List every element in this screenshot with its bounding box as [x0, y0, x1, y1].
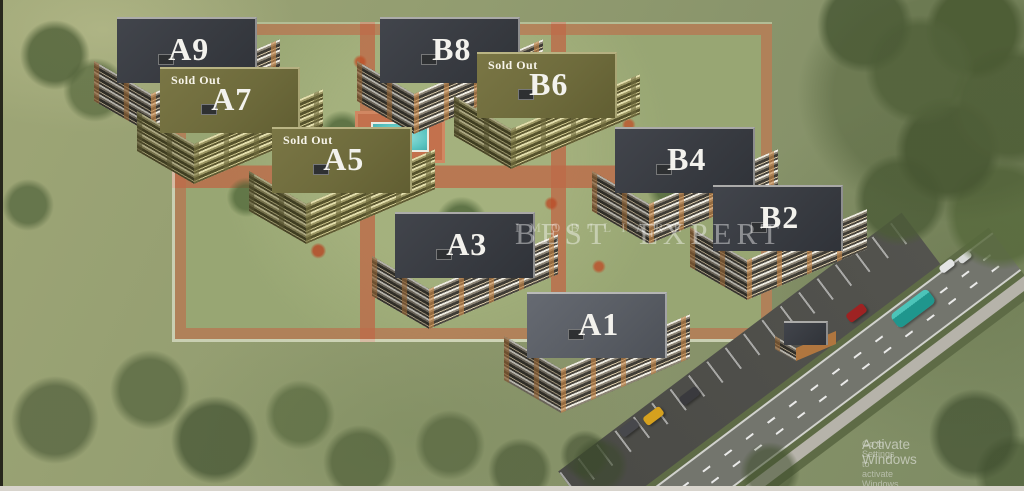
building-b6-roof: Sold Out B6 — [477, 52, 617, 118]
building-a5-roof: Sold Out A5 — [272, 127, 412, 193]
building-a3-label: A3 — [446, 226, 487, 263]
building-a1-roof: A1 — [527, 292, 667, 358]
aerial-site-render: B8 A9 Sold Out B6 Sold Out A7 — [0, 0, 1024, 491]
building-b4-roof: B4 — [615, 127, 755, 193]
building-b6-label: B6 — [529, 66, 568, 103]
building-a5-label: A5 — [323, 141, 364, 178]
building-a9-label: A9 — [168, 31, 209, 68]
building-a1-label: A1 — [578, 306, 619, 343]
left-edge-strip — [0, 0, 3, 491]
building-b8-label: B8 — [432, 31, 471, 68]
building-b4-label: B4 — [667, 141, 706, 178]
bottom-edge-strip — [0, 486, 1024, 491]
activate-windows-subtitle: Go to Settings to activate Windows. — [862, 439, 901, 489]
building-a3-roof: A3 — [395, 212, 535, 278]
building-b2-label: B2 — [760, 199, 799, 236]
building-b2-roof: B2 — [713, 185, 843, 251]
building-a7-roof: Sold Out A7 — [160, 67, 300, 133]
building-a7-label: A7 — [211, 81, 252, 118]
